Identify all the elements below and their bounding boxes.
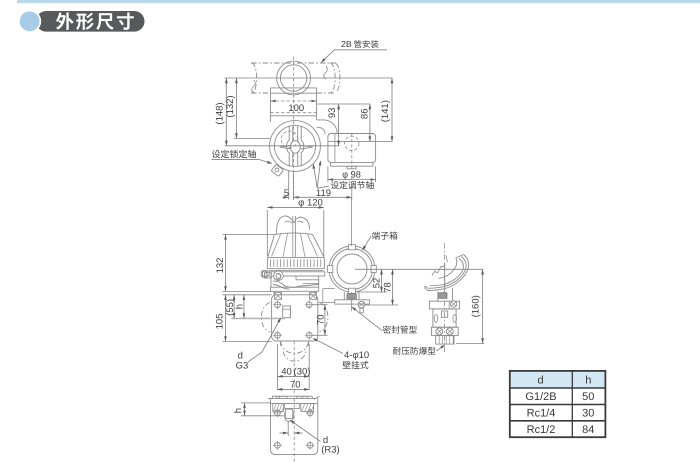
- svg-text:G3: G3: [236, 361, 249, 372]
- svg-text:86: 86: [360, 109, 371, 120]
- svg-text:(160): (160): [471, 295, 482, 317]
- svg-text:Rc1/2: Rc1/2: [527, 424, 556, 436]
- svg-text:78: 78: [383, 282, 394, 293]
- svg-text:h: h: [585, 374, 591, 386]
- svg-text:2B: 2B: [341, 39, 352, 49]
- svg-text:132: 132: [215, 258, 226, 274]
- svg-text:4-φ10: 4-φ10: [344, 350, 369, 361]
- svg-text:(141): (141): [380, 100, 391, 122]
- svg-text:φ 120: φ 120: [298, 197, 323, 208]
- svg-text:93: 93: [327, 108, 338, 119]
- svg-text:h: h: [233, 408, 244, 413]
- svg-text:(132): (132): [225, 95, 236, 117]
- svg-text:105: 105: [214, 314, 225, 330]
- svg-text:84: 84: [582, 424, 594, 436]
- svg-text:d: d: [537, 374, 543, 386]
- svg-text:φ 98: φ 98: [342, 169, 361, 179]
- svg-text:50: 50: [582, 391, 594, 403]
- svg-text:52: 52: [371, 278, 382, 289]
- svg-text:70: 70: [316, 314, 327, 325]
- svg-text:(148): (148): [214, 102, 225, 124]
- svg-text:h: h: [235, 304, 246, 309]
- svg-text:100: 100: [288, 103, 304, 114]
- svg-text:70: 70: [290, 380, 301, 391]
- svg-text:(30): (30): [294, 367, 311, 378]
- svg-text:30: 30: [582, 408, 594, 420]
- svg-text:(R3): (R3): [321, 445, 339, 456]
- svg-text:Rc1/4: Rc1/4: [527, 408, 556, 420]
- svg-text:G1/2B: G1/2B: [525, 391, 556, 403]
- svg-text:40: 40: [281, 367, 292, 378]
- svg-text:5: 5: [284, 188, 289, 199]
